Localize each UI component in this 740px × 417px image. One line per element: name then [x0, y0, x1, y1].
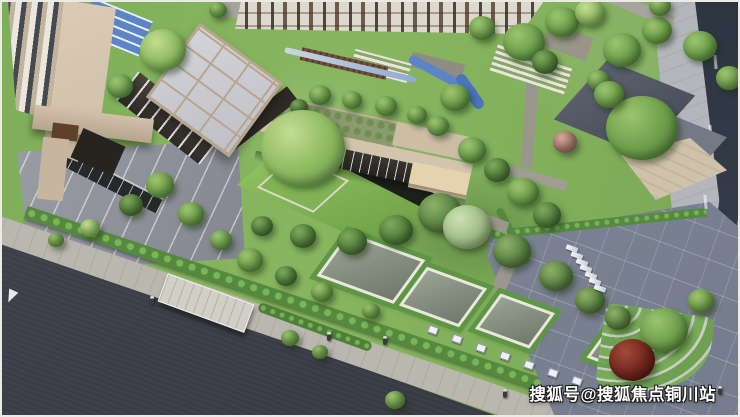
tree [683, 31, 717, 62]
tree [261, 110, 345, 186]
tree [210, 230, 232, 250]
tree [533, 202, 561, 227]
pedestrian [150, 296, 154, 305]
tree [146, 172, 174, 197]
tree [642, 17, 672, 44]
tree [443, 205, 491, 248]
tree [484, 158, 510, 181]
tree [251, 216, 273, 236]
aerial-rendering-scene: 搜狐号@搜狐焦点铜川站 [0, 0, 740, 417]
tree [493, 234, 531, 268]
tree [427, 116, 449, 136]
tree [290, 224, 316, 247]
tree [342, 91, 362, 109]
tree [237, 248, 263, 271]
tree [609, 339, 655, 380]
tree [312, 345, 328, 359]
tree [379, 215, 413, 246]
tree [107, 74, 133, 97]
tree [688, 289, 714, 312]
tree [209, 2, 227, 18]
tree [309, 85, 331, 105]
tree [119, 194, 143, 216]
tree [603, 33, 641, 67]
tree [594, 81, 624, 108]
tree [539, 261, 573, 292]
tree [178, 202, 204, 225]
tree [375, 96, 397, 116]
tree [716, 66, 740, 89]
tree [575, 0, 605, 26]
sohu-watermark: 搜狐号@搜狐焦点铜川站 [529, 381, 716, 405]
tree [385, 391, 405, 409]
tree [545, 7, 579, 38]
tree [80, 219, 100, 237]
tree [605, 306, 631, 329]
tree [553, 131, 577, 153]
tree [507, 178, 539, 207]
tree [440, 84, 470, 111]
tree [407, 106, 427, 124]
tree [532, 50, 558, 73]
tree [458, 137, 486, 162]
pedestrian [383, 336, 387, 345]
tree [311, 282, 333, 302]
tree [469, 16, 495, 39]
pedestrian [327, 332, 331, 341]
tree [275, 266, 297, 286]
tree [48, 233, 64, 247]
tree [140, 29, 186, 70]
tree [362, 303, 380, 319]
tree [337, 228, 367, 255]
pedestrian [718, 386, 722, 395]
tree [281, 330, 299, 346]
pedestrian [503, 389, 507, 398]
